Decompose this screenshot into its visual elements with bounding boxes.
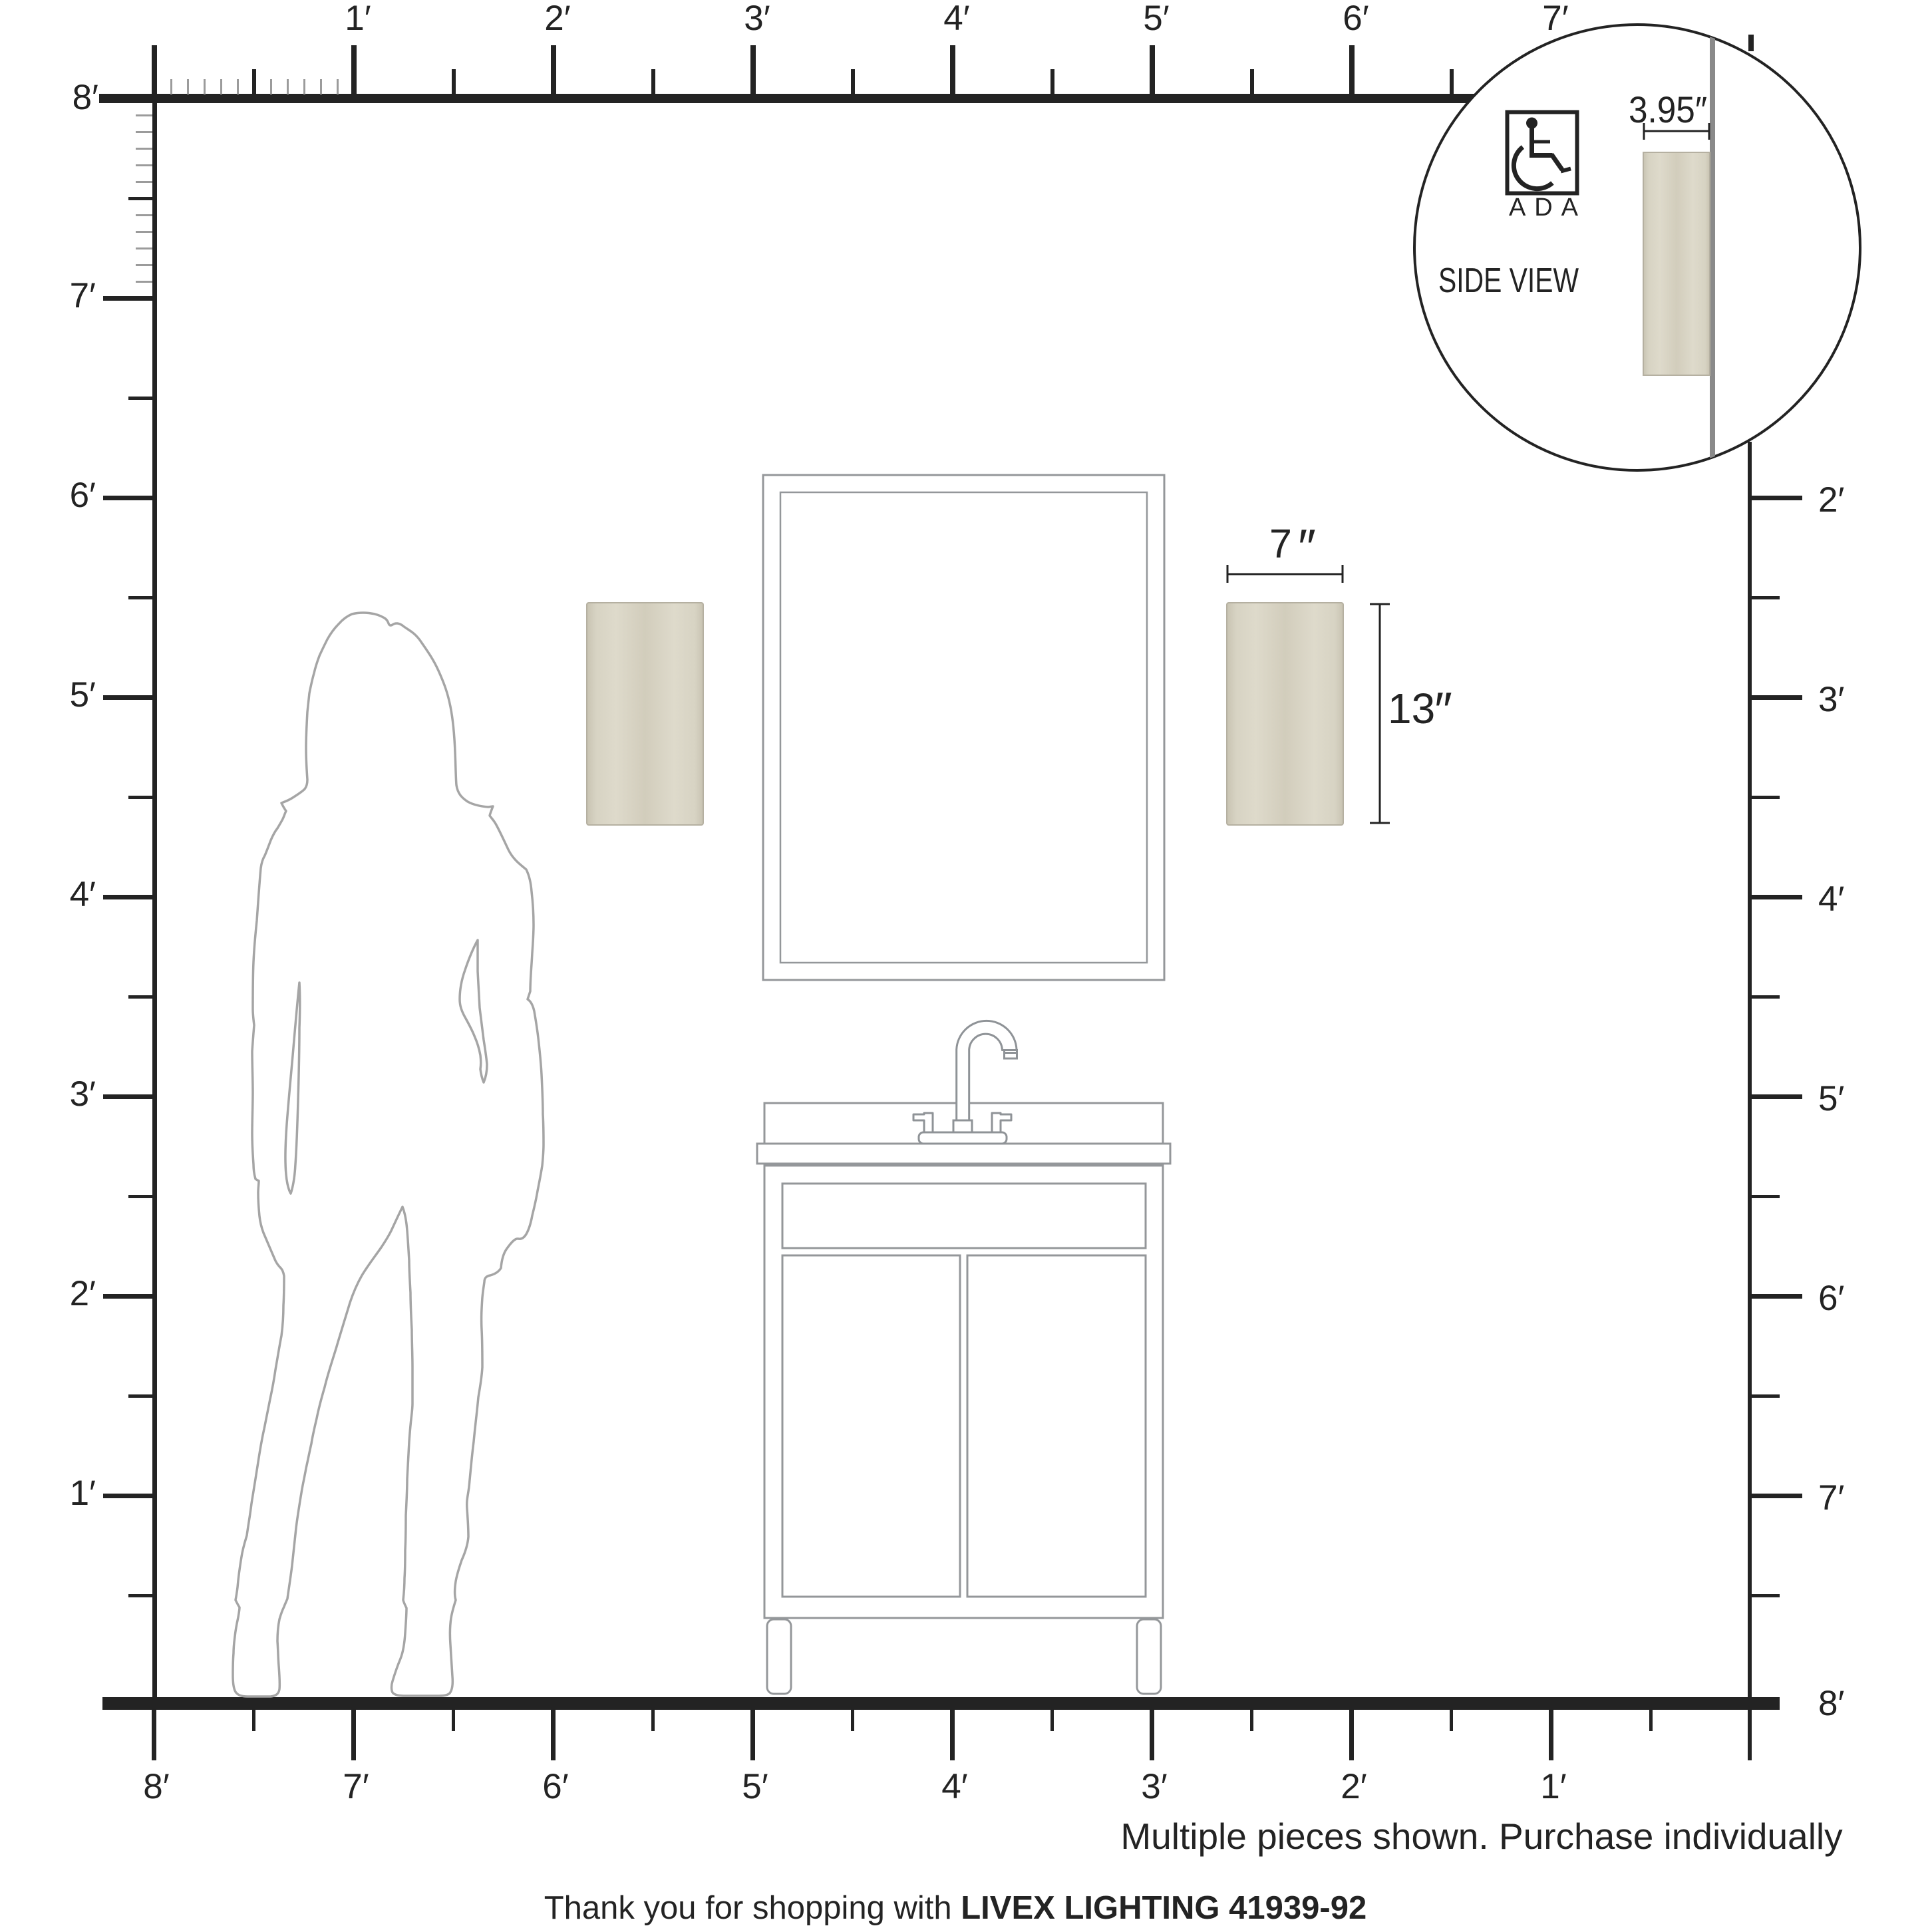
svg-text:7′: 7′ xyxy=(1818,1478,1844,1518)
svg-text:SIDE VIEW: SIDE VIEW xyxy=(1438,261,1579,300)
svg-text:3′: 3′ xyxy=(744,0,770,38)
svg-text:7: 7 xyxy=(1269,521,1292,566)
svg-text:3′: 3′ xyxy=(1141,1767,1167,1806)
svg-text:″: ″ xyxy=(1298,520,1316,576)
svg-text:4′: 4′ xyxy=(1818,880,1844,919)
svg-text:7′: 7′ xyxy=(1542,0,1568,38)
svg-text:2′: 2′ xyxy=(1818,480,1844,520)
svg-text:7′: 7′ xyxy=(70,276,96,315)
svg-text:8′: 8′ xyxy=(73,78,98,117)
svg-text:4′: 4′ xyxy=(943,0,969,38)
svg-text:5′: 5′ xyxy=(742,1767,768,1806)
svg-text:13: 13 xyxy=(1388,685,1435,732)
svg-text:6′: 6′ xyxy=(70,476,96,515)
svg-text:8′: 8′ xyxy=(143,1767,169,1806)
svg-text:3′: 3′ xyxy=(70,1074,96,1114)
svg-text:5′: 5′ xyxy=(1143,0,1169,38)
svg-text:1′: 1′ xyxy=(1540,1767,1566,1806)
svg-text:Thank you for shopping with LI: Thank you for shopping with LIVEX LIGHTI… xyxy=(544,1890,1367,1926)
svg-text:6′: 6′ xyxy=(1818,1279,1844,1318)
svg-text:8′: 8′ xyxy=(1818,1684,1844,1723)
svg-text:5′: 5′ xyxy=(70,675,96,715)
svg-text:3.95″: 3.95″ xyxy=(1629,88,1707,130)
svg-text:1′: 1′ xyxy=(345,0,371,38)
svg-text:7′: 7′ xyxy=(343,1767,369,1806)
svg-text:6′: 6′ xyxy=(542,1767,568,1806)
svg-text:1′: 1′ xyxy=(70,1474,96,1513)
svg-text:2′: 2′ xyxy=(544,0,570,38)
svg-text:4′: 4′ xyxy=(941,1767,967,1806)
svg-text:″: ″ xyxy=(1434,683,1452,739)
svg-text:6′: 6′ xyxy=(1343,0,1368,38)
svg-text:5′: 5′ xyxy=(1818,1079,1844,1118)
svg-text:Multiple pieces shown. Purcha: Multiple pieces shown. Purchase individu… xyxy=(1120,1816,1843,1857)
svg-text:2′: 2′ xyxy=(70,1274,96,1313)
svg-text:ADA: ADA xyxy=(1509,194,1579,222)
svg-text:4′: 4′ xyxy=(70,875,96,914)
svg-text:2′: 2′ xyxy=(1341,1767,1367,1806)
svg-text:3′: 3′ xyxy=(1818,680,1844,719)
